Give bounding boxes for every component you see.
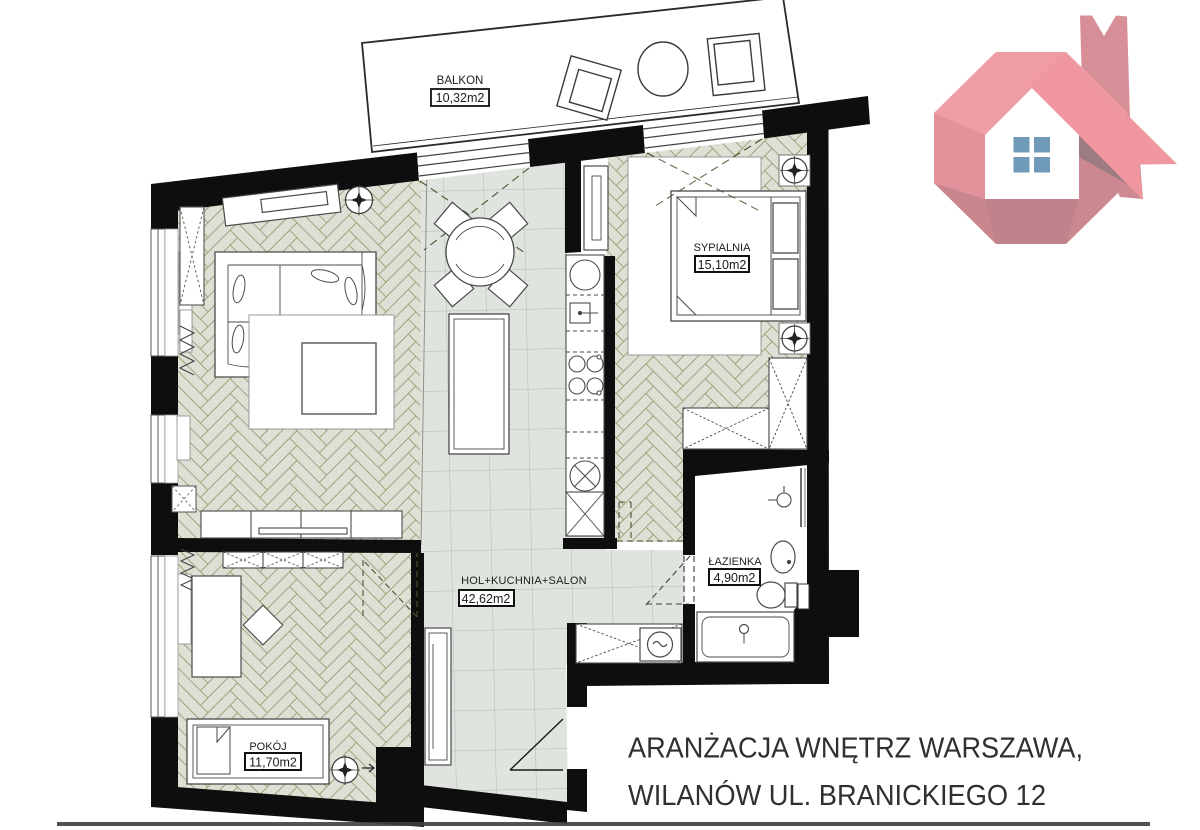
- svg-text:BALKON: BALKON: [437, 75, 484, 87]
- svg-text:WILANÓW UL. BRANICKIEGO 12: WILANÓW UL. BRANICKIEGO 12: [628, 779, 1046, 812]
- svg-text:POKÓJ: POKÓJ: [249, 740, 286, 753]
- svg-text:ŁAZIENKA: ŁAZIENKA: [708, 556, 762, 568]
- svg-text:ARANŻACJA WNĘTRZ WARSZAWA,: ARANŻACJA WNĘTRZ WARSZAWA,: [628, 732, 1083, 765]
- svg-text:4,90m2: 4,90m2: [714, 571, 756, 585]
- svg-text:SYPIALNIA: SYPIALNIA: [694, 242, 752, 254]
- svg-text:HOL+KUCHNIA+SALON: HOL+KUCHNIA+SALON: [461, 575, 587, 587]
- svg-text:42,62m2: 42,62m2: [462, 592, 511, 606]
- svg-text:10,32m2: 10,32m2: [436, 91, 485, 105]
- svg-text:15,10m2: 15,10m2: [698, 258, 747, 272]
- svg-text:11,70m2: 11,70m2: [249, 756, 297, 770]
